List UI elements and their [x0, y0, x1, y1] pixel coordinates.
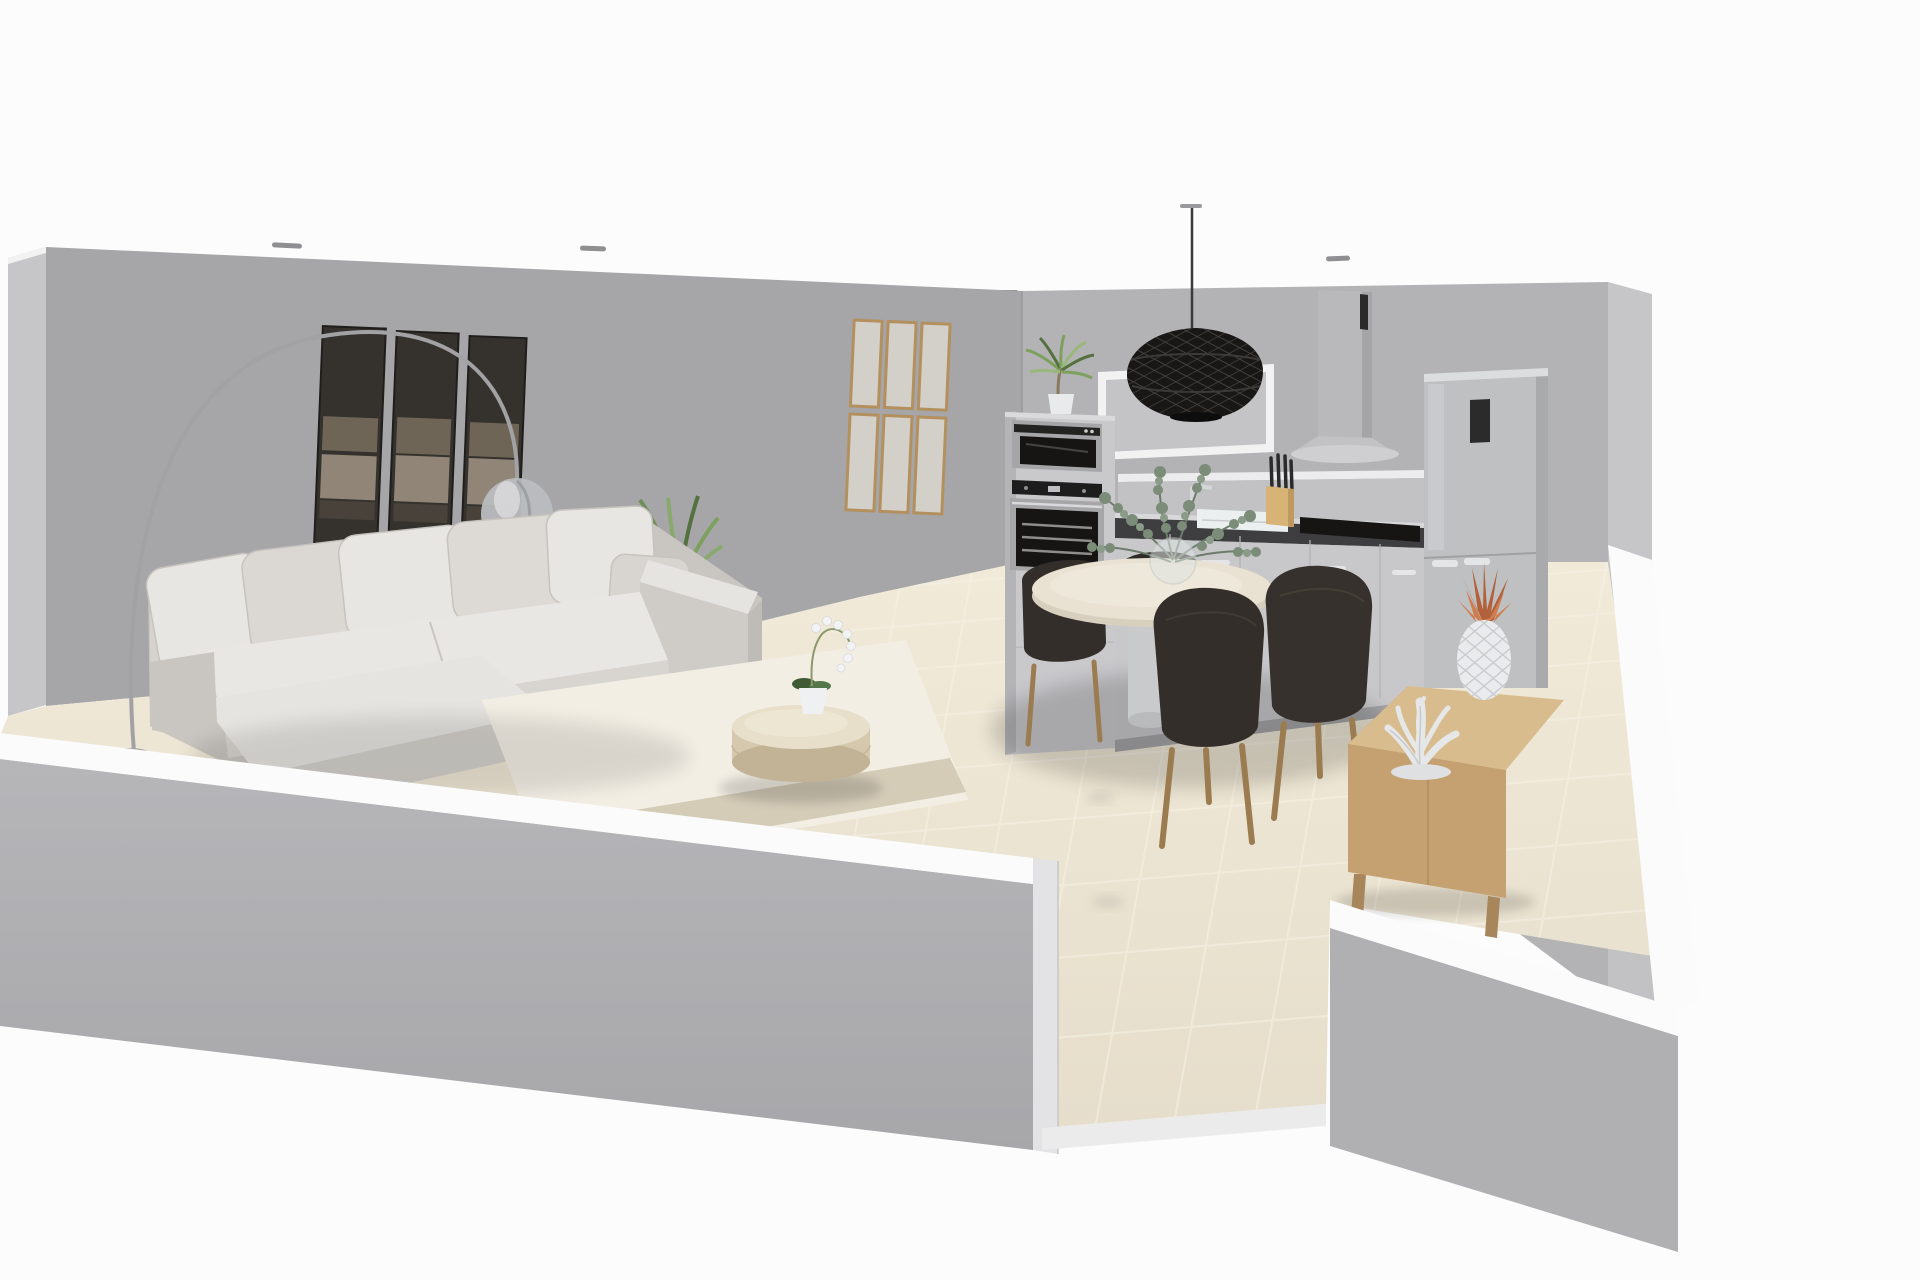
wall-frame[interactable] [884, 322, 916, 409]
glass-vase [1150, 538, 1196, 584]
frame-grid[interactable] [846, 320, 950, 514]
wall-frame[interactable] [850, 320, 882, 407]
orchid-pot [799, 688, 827, 714]
plant-pot [1048, 394, 1074, 414]
hood-vent-slot [1360, 294, 1368, 330]
scene-3d-render [0, 0, 1920, 1280]
floor-smudge [1092, 896, 1124, 908]
microwave[interactable] [1012, 420, 1102, 472]
left-wall [8, 247, 46, 716]
wall-frame[interactable] [880, 415, 912, 512]
sofa-arm-left [150, 652, 218, 745]
wall-frame[interactable] [914, 417, 946, 514]
fridge-display[interactable] [1470, 399, 1490, 443]
art-panel[interactable] [314, 326, 386, 556]
oven[interactable] [1010, 480, 1104, 574]
right-wall-sliver [1608, 282, 1652, 560]
spotlight-icon [580, 246, 606, 252]
floor-smudge [1086, 793, 1114, 803]
render-viewport [0, 0, 1920, 1280]
wall-frame[interactable] [846, 414, 878, 511]
knife-block[interactable] [1266, 455, 1294, 527]
front-wall-left-end [1033, 858, 1058, 1154]
spotlight-icon [1326, 256, 1350, 262]
wall-frame[interactable] [918, 323, 950, 410]
coral-ornament[interactable] [1388, 698, 1456, 780]
